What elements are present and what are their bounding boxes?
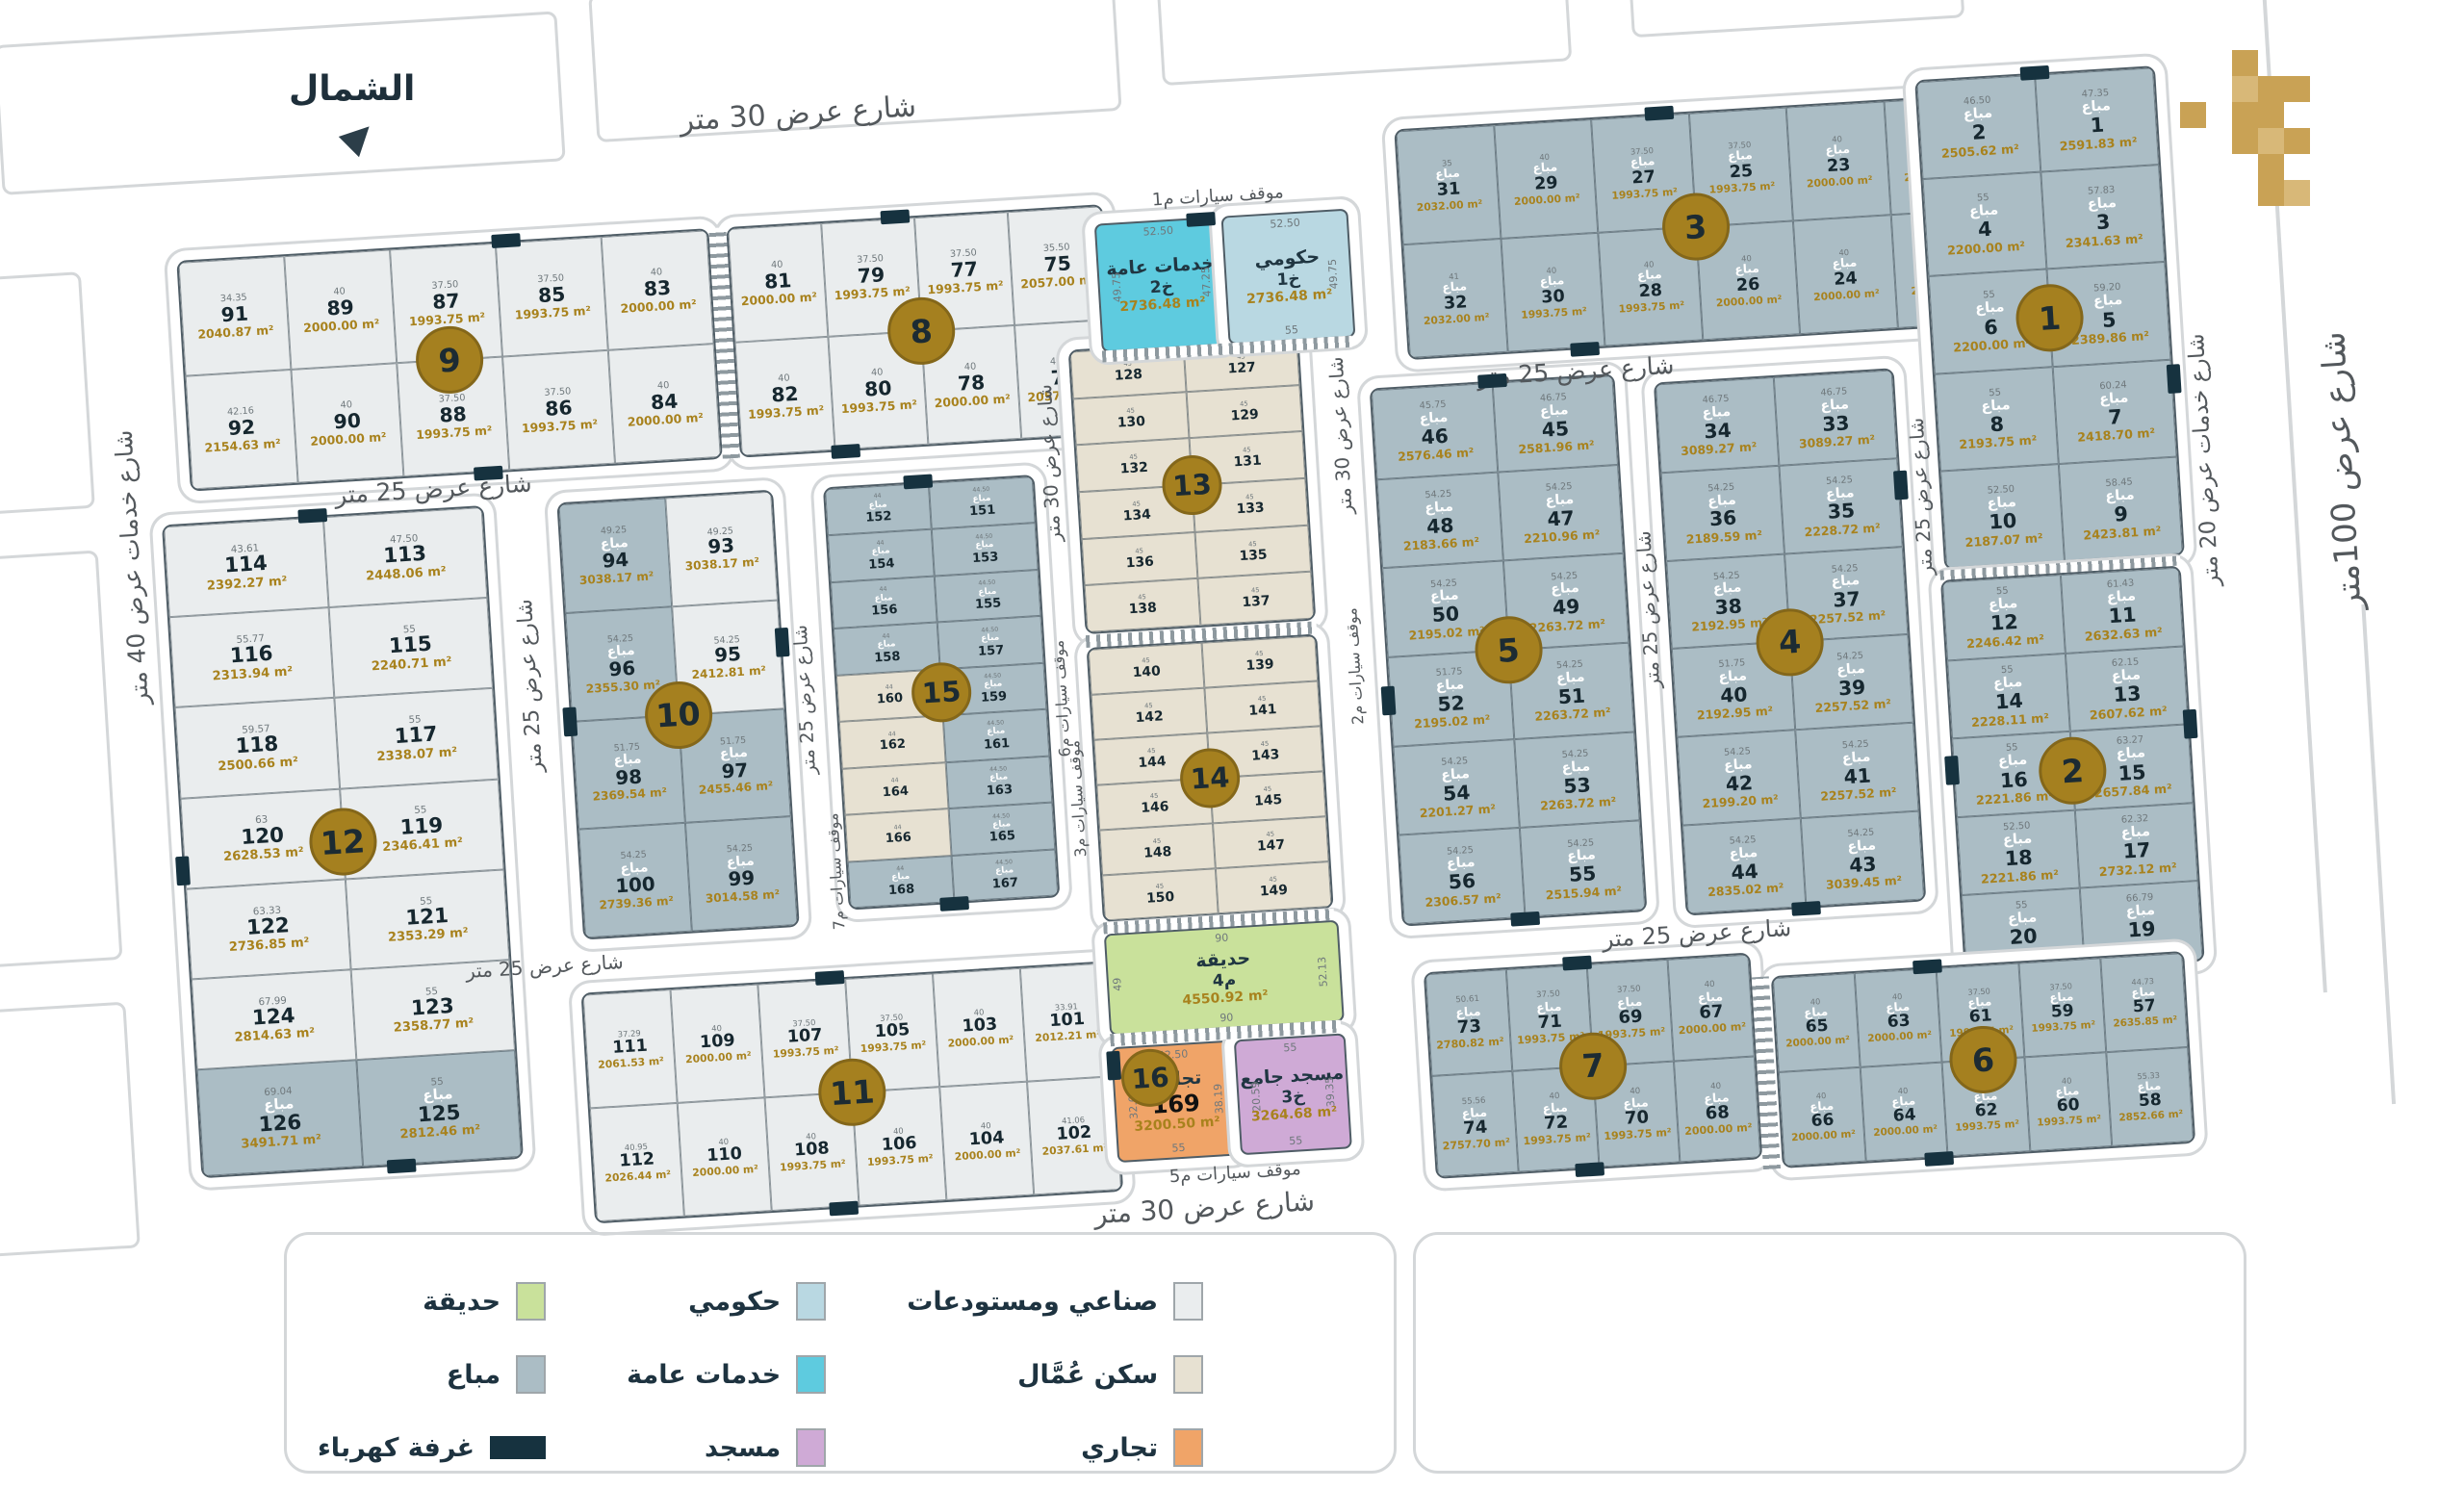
plot-area: 2257.52 m² — [1814, 697, 1891, 714]
legend-label: حكومي — [688, 1287, 781, 1317]
plot-area: 2000.00 m² — [627, 411, 704, 428]
plot-11[interactable]: 61.43مباع112632.63 m² — [2061, 568, 2184, 654]
plot-area: 1993.75 m² — [1618, 299, 1684, 314]
plot-area: 1993.75 m² — [1708, 180, 1775, 194]
plot-number: 50 — [1431, 604, 1459, 627]
electricity-room — [2167, 365, 2182, 395]
plot-135[interactable]: 45135 — [1194, 525, 1311, 578]
plot-number: 119 — [399, 815, 444, 839]
plot-137[interactable]: 45137 — [1197, 572, 1314, 626]
electricity-room — [1912, 959, 1942, 974]
street-label: شارع عرض 30 متر — [1324, 356, 1357, 515]
plot-139[interactable]: 45139 — [1202, 636, 1319, 688]
electricity-room — [1791, 901, 1821, 916]
plot-area: 2032.00 m² — [1424, 312, 1490, 326]
plot-number: 160 — [876, 692, 903, 706]
parcel-area: 3264.68 m² — [1251, 1105, 1338, 1125]
legend-column: صناعي ومستودعاتسكن عُمَّالتجاري — [907, 1280, 1203, 1469]
block-6: 40مباع652000.00 m²40مباع632000.00 m²37.5… — [1771, 951, 2195, 1168]
plot-area: 2369.54 m² — [592, 786, 667, 803]
plot-number: 144 — [1138, 755, 1167, 770]
plan-canvas: 34.35912040.87 m²40892000.00 m²37.508719… — [0, 0, 2464, 1489]
plot-area: 2355.30 m² — [585, 679, 660, 695]
plot-number: 18 — [2004, 848, 2033, 870]
plot-65[interactable]: 40مباع652000.00 m² — [1773, 973, 1861, 1072]
plot-104[interactable]: 401042000.00 m² — [939, 1082, 1034, 1200]
plot-122[interactable]: 63.331222736.85 m² — [186, 879, 350, 979]
plot-33[interactable]: 46.75مباع333089.27 m² — [1774, 370, 1897, 465]
context-block-outline — [0, 551, 123, 972]
plot-number: 29 — [1534, 175, 1558, 194]
parcel-garden[interactable]: حديقةم44550.92 m²90904952.13 — [1104, 920, 1345, 1037]
plot-area: 3039.45 m² — [1826, 874, 1903, 891]
parcel-dimension: 52.50 — [1142, 224, 1173, 239]
legend-swatch-services — [796, 1355, 826, 1394]
plot-84[interactable]: 40842000.00 m² — [608, 344, 721, 463]
plot-area: 2210.96 m² — [1524, 527, 1601, 545]
plot-75[interactable]: 35.50752057.00 m² — [1008, 206, 1108, 325]
sold-label: مباع — [2093, 294, 2123, 310]
plot-153[interactable]: 44.50مباع153 — [932, 523, 1039, 576]
plot-number: 54 — [1443, 783, 1471, 805]
electricity-room — [298, 508, 328, 524]
plot-2[interactable]: 46.50مباع22505.62 m² — [1916, 75, 2040, 180]
parcel-dimension: 55 — [1171, 1142, 1186, 1155]
plot-7[interactable]: 60.24مباع72418.70 m² — [2053, 359, 2177, 464]
sold-label: مباع — [987, 727, 1006, 737]
plot-167[interactable]: 44.50مباع167 — [952, 849, 1059, 902]
plot-157[interactable]: 44.50مباع157 — [937, 616, 1044, 669]
legend-item-commercial: تجاري — [907, 1426, 1203, 1469]
plot-154[interactable]: 44مباع154 — [828, 529, 935, 582]
plot-number: 97 — [721, 760, 749, 782]
plot-number: 31 — [1436, 181, 1460, 200]
plot-number: 63 — [1886, 1014, 1911, 1032]
plot-number: 112 — [619, 1151, 655, 1171]
plot-area: 2607.62 m² — [2089, 704, 2168, 721]
plot-number: 99 — [728, 869, 756, 890]
plot-45[interactable]: 46.75مباع452581.96 m² — [1492, 375, 1618, 472]
plot-53[interactable]: 54.25مباع532263.72 m² — [1514, 732, 1640, 828]
plot-number: 139 — [1245, 657, 1274, 673]
plot-90[interactable]: 40902000.00 m² — [291, 363, 403, 482]
plot-101[interactable]: 33.911012012.21 m² — [1020, 963, 1115, 1081]
plot-number: 49 — [1553, 597, 1580, 619]
plot-150[interactable]: 45150 — [1102, 868, 1219, 920]
plot-area: 2835.02 m² — [1707, 881, 1784, 898]
plot-area: 2061.53 m² — [598, 1055, 664, 1069]
electricity-room — [1944, 756, 1960, 785]
legend-item-services: خدمات عامة — [627, 1353, 826, 1396]
plot-area: 2812.46 m² — [399, 1124, 480, 1142]
plot-number: 153 — [972, 551, 999, 565]
plot-47[interactable]: 54.25مباع472210.96 m² — [1498, 465, 1624, 561]
plot-64[interactable]: 40مباع642000.00 m² — [1861, 1063, 1948, 1162]
plot-18[interactable]: 52.50مباع182221.86 m² — [1957, 809, 2080, 895]
plot-number: 157 — [978, 644, 1005, 658]
parcel-title: حكومي — [1254, 246, 1321, 271]
plot-number: 77 — [950, 259, 978, 281]
plot-110[interactable]: 401102000.00 m² — [678, 1097, 772, 1216]
parcel-dimension: 49.75 — [1325, 259, 1340, 290]
plot-number: 72 — [1544, 1115, 1569, 1134]
plot-129[interactable]: 45129 — [1187, 385, 1303, 439]
plot-85[interactable]: 37.50851993.75 m² — [496, 237, 608, 356]
plot-55[interactable]: 54.25مباع552515.94 m² — [1519, 821, 1645, 917]
plot-number: 74 — [1463, 1119, 1488, 1139]
legend-swatch-electricity — [490, 1436, 546, 1459]
plot-area: 2195.02 m² — [1408, 624, 1485, 641]
plot-9[interactable]: 58.45مباع92423.81 m² — [2059, 456, 2183, 561]
plot-number: 51 — [1557, 685, 1585, 707]
plot-area: 2000.00 m² — [1791, 1130, 1856, 1144]
plot-166[interactable]: 44166 — [845, 809, 952, 861]
plot-number: 105 — [874, 1021, 911, 1041]
plot-83[interactable]: 40832000.00 m² — [602, 230, 714, 349]
plot-34[interactable]: 46.75مباع343089.27 m² — [1655, 377, 1779, 473]
plot-66[interactable]: 40مباع662000.00 m² — [1779, 1067, 1866, 1167]
plot-area: 2814.63 m² — [234, 1027, 315, 1045]
legend-swatch-industrial — [1173, 1282, 1203, 1321]
plot-number: 103 — [962, 1016, 998, 1037]
plot-number: 17 — [2122, 840, 2151, 862]
plot-142[interactable]: 45142 — [1091, 688, 1208, 740]
plot-number: 15 — [2117, 762, 2146, 784]
plot-number: 90 — [333, 410, 361, 432]
electricity-room — [1510, 911, 1540, 927]
plot-59[interactable]: 37.50مباع591993.75 m² — [2018, 958, 2106, 1057]
plot-number: 92 — [227, 417, 255, 439]
electricity-room — [1925, 1151, 1955, 1167]
plot-area: 2000.00 m² — [954, 1147, 1020, 1162]
context-block-outline — [0, 271, 95, 520]
plot-number: 126 — [258, 1113, 302, 1137]
plot-130[interactable]: 45130 — [1073, 392, 1190, 446]
plot-area: 3089.27 m² — [1799, 432, 1876, 449]
electricity-room — [1186, 212, 1216, 227]
plot-48[interactable]: 54.25مباع482183.66 m² — [1376, 472, 1502, 568]
parcel-dimension: 90 — [1215, 932, 1229, 945]
plot-area: 2257.52 m² — [1809, 609, 1886, 627]
plot-number: 95 — [714, 645, 742, 666]
plot-102[interactable]: 41.061022037.61 m² — [1027, 1076, 1121, 1194]
plot-number: 83 — [643, 277, 671, 299]
plot-number: 64 — [1892, 1108, 1916, 1126]
plot-63[interactable]: 40مباع632000.00 m² — [1855, 968, 1942, 1067]
plot-number: 133 — [1236, 501, 1265, 516]
plot-number: 46 — [1421, 426, 1449, 449]
plot-area: 2591.83 m² — [2059, 135, 2138, 152]
plot-3[interactable]: 57.83مباع32341.63 m² — [2040, 165, 2165, 270]
parcel-dimension: 55 — [1284, 323, 1298, 337]
plot-number: 78 — [957, 372, 985, 395]
plot-8[interactable]: 55مباع82193.75 m² — [1935, 367, 2059, 472]
plot-124[interactable]: 67.991242814.63 m² — [192, 969, 356, 1069]
plot-74[interactable]: 55.56مباع742757.70 m² — [1431, 1070, 1518, 1176]
block-14: 4514045139451424514145144451434514645145… — [1087, 633, 1334, 922]
plot-area: 2000.00 m² — [1684, 1122, 1753, 1138]
plot-area: 2200.00 m² — [1947, 240, 2026, 257]
plot-number: 48 — [1426, 515, 1454, 537]
plot-number: 55 — [1569, 863, 1597, 886]
plot-area: 2736.85 m² — [228, 937, 309, 955]
plot-area: 2032.00 m² — [1416, 198, 1482, 213]
plot-number: 9 — [2114, 504, 2129, 526]
plot-area: 3014.58 m² — [705, 888, 780, 905]
plot-area: 1993.75 m² — [1611, 186, 1678, 200]
plot-number: 111 — [612, 1038, 649, 1058]
electricity-room — [1575, 1162, 1604, 1177]
plot-number: 164 — [882, 784, 909, 799]
plot-number: 165 — [988, 830, 1015, 844]
plot-94[interactable]: 49.25مباع943038.17 m² — [559, 498, 672, 612]
block-13: 4512845127451304512945132451314513445133… — [1068, 336, 1317, 634]
plot-number: 155 — [975, 598, 1002, 612]
legend-swatch-commercial — [1173, 1428, 1203, 1467]
electricity-room — [2183, 709, 2198, 739]
plot-32[interactable]: 41مباع322032.00 m² — [1403, 239, 1508, 358]
plot-114[interactable]: 43.611142392.27 m² — [164, 517, 328, 617]
plot-area: 2455.46 m² — [699, 781, 774, 797]
plot-109[interactable]: 401092000.00 m² — [670, 985, 764, 1103]
plot-35[interactable]: 54.25مباع352228.72 m² — [1779, 458, 1902, 553]
block-10: 49.25مباع943038.17 m²49.25933038.17 m²54… — [556, 490, 799, 940]
plot-112[interactable]: 40.951122026.44 m² — [590, 1103, 684, 1221]
plot-117[interactable]: 551172338.07 m² — [334, 688, 499, 788]
plot-number: 135 — [1239, 548, 1268, 563]
plot-area: 2012.21 m² — [1035, 1029, 1101, 1043]
plot-42[interactable]: 54.25مباع422199.20 m² — [1677, 731, 1800, 826]
legend-label: مباع — [447, 1360, 500, 1390]
plot-121[interactable]: 551212353.29 m² — [345, 869, 509, 969]
electricity-room — [881, 209, 911, 224]
street-label: شارع عرض 25 متر — [1905, 417, 1938, 576]
plot-91[interactable]: 34.35912040.87 m² — [178, 256, 291, 375]
plot-area: 2000.00 m² — [934, 392, 1011, 409]
parcel-subtitle: م4 — [1212, 972, 1236, 989]
plot-area: 2228.11 m² — [1971, 711, 2050, 729]
plot-area: 2576.46 m² — [1398, 446, 1475, 463]
plot-area: 2780.82 m² — [1436, 1036, 1504, 1051]
plot-99[interactable]: 54.25مباع993014.58 m² — [684, 816, 797, 931]
plot-number: 108 — [794, 1141, 831, 1161]
plot-number: 124 — [251, 1006, 295, 1030]
plot-area: 2389.86 m² — [2071, 329, 2150, 347]
plot-number: 7 — [2108, 407, 2123, 429]
plot-100[interactable]: 54.25مباع1002739.36 m² — [578, 823, 691, 937]
plot-area: 2221.86 m² — [1976, 789, 2055, 807]
plot-number: 57 — [2132, 998, 2156, 1016]
plot-118[interactable]: 59.571182500.66 m² — [175, 698, 340, 798]
plot-23[interactable]: 40مباع232000.00 m² — [1786, 101, 1891, 220]
plot-1[interactable]: 47.35مباع12591.83 m² — [2035, 67, 2159, 172]
plot-31[interactable]: 35مباع312032.00 m² — [1396, 125, 1501, 244]
plot-148[interactable]: 45148 — [1099, 823, 1216, 875]
plot-number: 14 — [1994, 691, 2023, 713]
plot-4[interactable]: 55مباع42200.00 m² — [1923, 172, 2047, 277]
plot-area: 1993.75 m² — [514, 304, 591, 321]
plot-141[interactable]: 45141 — [1204, 680, 1321, 732]
plot-number: 80 — [864, 378, 892, 400]
plot-54[interactable]: 54.25مباع542201.27 m² — [1393, 739, 1519, 835]
plot-dimension: 45 — [1135, 548, 1143, 554]
plot-area: 2257.52 m² — [1820, 785, 1897, 803]
street-label: شارع عرض 25 متر — [1602, 914, 1792, 953]
plot-area: 2263.72 m² — [1534, 706, 1611, 723]
plot-area: 1993.75 m² — [780, 1158, 846, 1172]
plot-89[interactable]: 40892000.00 m² — [284, 249, 397, 369]
plot-58[interactable]: 55.33مباع582852.66 m² — [2106, 1047, 2194, 1146]
plot-area: 2183.66 m² — [1403, 535, 1480, 552]
plot-area: 1993.75 m² — [1604, 1127, 1672, 1142]
plot-number: 94 — [602, 551, 629, 572]
plot-43[interactable]: 54.25مباع433039.45 m² — [1801, 811, 1924, 907]
plot-41[interactable]: 54.25مباع412257.52 m² — [1795, 723, 1918, 818]
legend-swatch-mosque — [796, 1428, 826, 1467]
legend-label: حديقة — [423, 1287, 500, 1317]
plot-162[interactable]: 44162 — [839, 715, 946, 768]
plot-area: 1993.75 m² — [840, 398, 917, 415]
plot-24[interactable]: 40مباع242000.00 m² — [1793, 215, 1898, 334]
plot-number: 6 — [1984, 317, 1999, 339]
plot-number: 141 — [1248, 703, 1277, 718]
plot-56[interactable]: 54.25مباع562306.57 m² — [1399, 828, 1525, 924]
plot-125[interactable]: 55مباع1252812.46 m² — [356, 1050, 522, 1167]
plot-151[interactable]: 44.50مباع151 — [929, 476, 1036, 529]
block-8: 40812000.00 m²37.50791993.75 m²37.507719… — [726, 204, 1116, 457]
plot-number: 122 — [246, 915, 291, 939]
plot-area: 1993.75 m² — [773, 1044, 839, 1059]
plot-92[interactable]: 42.16922154.63 m² — [186, 370, 298, 489]
plot-60[interactable]: 40مباع601993.75 m² — [2024, 1052, 2112, 1151]
plot-67[interactable]: 40مباع672000.00 m² — [1668, 955, 1755, 1061]
parcel-area: 3200.50 m² — [1134, 1116, 1220, 1136]
plot-dimension: 55 — [2015, 900, 2028, 911]
plot-number: 28 — [1638, 282, 1662, 301]
plot-number: 13 — [2113, 683, 2142, 706]
parcel-commercial[interactable]: 16تجاري1693200.50 m²52.505532.0238.19 — [1111, 1040, 1241, 1163]
plot-163[interactable]: 44.50مباع163 — [946, 756, 1053, 809]
electricity-room — [829, 1201, 859, 1217]
plot-number: 113 — [383, 544, 427, 568]
plot-13[interactable]: 62.15مباع132607.62 m² — [2066, 646, 2189, 732]
plot-29[interactable]: 40مباع292000.00 m² — [1494, 119, 1599, 239]
plot-number: 91 — [220, 303, 248, 325]
plot-dimension: 55 — [2001, 665, 2014, 676]
plot-152[interactable]: 44مباع152 — [825, 483, 932, 536]
plot-area: 2228.72 m² — [1804, 521, 1881, 538]
plot-116[interactable]: 55.771162313.94 m² — [169, 607, 334, 707]
plot-number: 143 — [1251, 748, 1280, 763]
parcel-subtitle: خ3 — [1281, 1089, 1305, 1106]
plot-57[interactable]: 44.73مباع572635.85 m² — [2100, 953, 2188, 1052]
plot-149[interactable]: 45149 — [1216, 861, 1332, 913]
plot-147[interactable]: 45147 — [1213, 816, 1329, 868]
plot-number: 115 — [389, 634, 433, 658]
plot-126[interactable]: 69.04مباع1263491.71 m² — [197, 1060, 363, 1176]
plot-area: 2026.44 m² — [604, 1168, 671, 1183]
plot-number: 114 — [224, 553, 269, 578]
sold-label: مباع — [1975, 301, 2005, 318]
plot-44[interactable]: 54.25مباع442835.02 m² — [1682, 818, 1806, 913]
plot-165[interactable]: 44.50مباع165 — [949, 803, 1056, 856]
block-2: 55مباع122246.42 m²61.43مباع112632.63 m²5… — [1940, 565, 2205, 975]
plot-73[interactable]: 50.61مباع732780.82 m² — [1425, 969, 1512, 1075]
plot-115[interactable]: 551152240.71 m² — [328, 598, 493, 698]
plot-30[interactable]: 40مباع301993.75 m² — [1501, 233, 1605, 352]
plot-138[interactable]: 45138 — [1085, 578, 1201, 632]
plot-156[interactable]: 44مباع156 — [831, 576, 937, 629]
plot-number: 1 — [2090, 116, 2105, 138]
plot-82[interactable]: 40821993.75 m² — [735, 337, 835, 456]
plot-113[interactable]: 47.501132448.06 m² — [322, 507, 487, 607]
plot-number: 166 — [885, 832, 911, 846]
plot-93[interactable]: 49.25933038.17 m² — [665, 492, 778, 606]
plot-155[interactable]: 44.50مباع155 — [935, 570, 1041, 623]
plot-number: 44 — [1731, 861, 1758, 884]
plot-168[interactable]: 44مباع168 — [848, 856, 955, 909]
plot-area: 2192.95 m² — [1691, 616, 1768, 633]
plot-17[interactable]: 62.32مباع172732.12 m² — [2075, 803, 2198, 888]
plot-10[interactable]: 52.50مباع102187.07 m² — [1940, 464, 2065, 569]
legend-item-industrial: صناعي ومستودعات — [907, 1280, 1203, 1322]
plot-area: 1993.75 m² — [1521, 305, 1587, 320]
legend-item-sold: مباع — [318, 1353, 546, 1396]
plot-number: 65 — [1805, 1018, 1829, 1037]
plot-86[interactable]: 37.50861993.75 m² — [502, 350, 615, 470]
parcel-kh2[interactable]: خدمات عامةخ22736.48 m²52.5049.7547.25 — [1094, 217, 1229, 353]
plot-number: 4 — [1978, 219, 1993, 242]
electricity-room — [2020, 65, 2050, 81]
plot-area: 2341.63 m² — [2065, 232, 2143, 249]
plot-68[interactable]: 40مباع682000.00 m² — [1674, 1056, 1760, 1162]
plot-area: 2000.00 m² — [692, 1164, 758, 1178]
plot-area: 2581.96 m² — [1518, 439, 1595, 456]
plot-number: 41 — [1843, 765, 1871, 787]
block-7: 50.61مباع732780.82 m²37.50مباع711993.75 … — [1424, 953, 1762, 1179]
plot-number: 73 — [1456, 1018, 1481, 1038]
plot-81[interactable]: 40812000.00 m² — [728, 223, 828, 343]
plot-12[interactable]: 55مباع122246.42 m² — [1942, 575, 2066, 660]
plot-161[interactable]: 44.50مباع161 — [943, 709, 1050, 762]
parcel-kh1[interactable]: حكوميخ12736.48 m²52.505549.75 — [1221, 209, 1356, 346]
plot-number: 130 — [1116, 414, 1145, 429]
plot-140[interactable]: 45140 — [1089, 643, 1205, 695]
plot-number: 142 — [1135, 709, 1164, 725]
plot-number: 43 — [1849, 854, 1877, 876]
plot-number: 140 — [1132, 664, 1161, 680]
plot-36[interactable]: 54.25مباع362189.59 m² — [1661, 466, 1784, 561]
parcel-area: 2736.48 m² — [1119, 295, 1206, 316]
plot-136[interactable]: 45136 — [1082, 532, 1198, 586]
plot-103[interactable]: 401032000.00 m² — [933, 968, 1027, 1087]
plot-area: 2000.00 m² — [1807, 174, 1873, 189]
legend-item-mosque: مسجد — [627, 1426, 826, 1469]
plot-14[interactable]: 55مباع142228.11 m² — [1947, 654, 2070, 739]
plot-area: 3038.17 m² — [579, 570, 654, 586]
parcel-mosque[interactable]: مسجد جامعخ33264.68 m²555520.5939.35 — [1234, 1033, 1352, 1155]
plot-46[interactable]: 45.75مباع462576.46 m² — [1372, 383, 1498, 479]
legend-column: حكوميخدمات عامةمسجد — [627, 1280, 826, 1469]
plot-area: 2193.75 m² — [1959, 434, 2038, 451]
plot-111[interactable]: 37.291112061.53 m² — [583, 989, 678, 1108]
plot-number: 32 — [1444, 295, 1468, 314]
plot-number: 138 — [1128, 602, 1157, 617]
plot-dimension: 55 — [1989, 388, 2001, 398]
electricity-room — [1570, 342, 1600, 357]
plot-number: 85 — [537, 284, 565, 306]
plot-164[interactable]: 44164 — [842, 762, 949, 815]
